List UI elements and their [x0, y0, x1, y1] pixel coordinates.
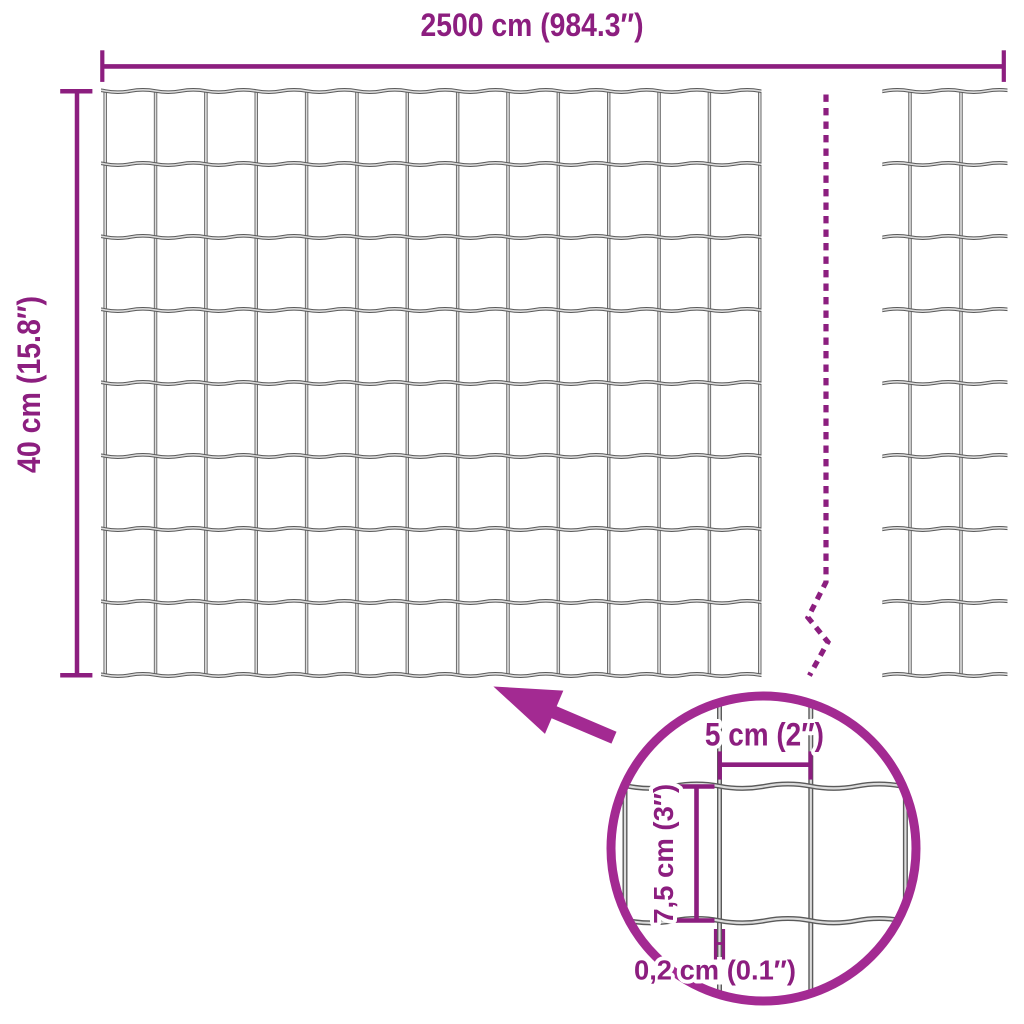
svg-text:40 cm (15.8″): 40 cm (15.8″): [11, 296, 47, 473]
svg-text:7,5 cm (3″): 7,5 cm (3″): [648, 784, 679, 924]
svg-text:2500 cm (984.3″): 2500 cm (984.3″): [421, 7, 644, 43]
svg-text:5 cm (2″): 5 cm (2″): [705, 717, 824, 753]
